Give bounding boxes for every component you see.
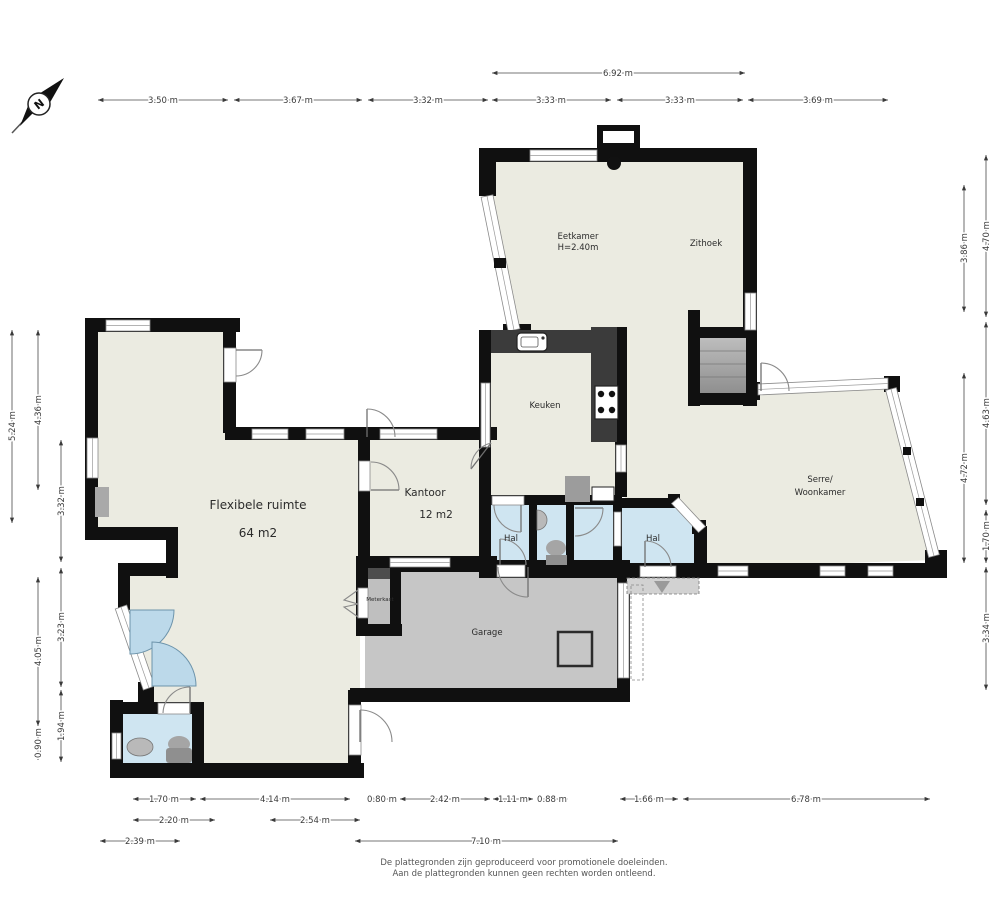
floor-plan: N [0, 0, 1000, 908]
dim-bottom1-7: 6.78 m [791, 795, 821, 805]
dim-bottom3-0: 2.39 m [125, 837, 155, 847]
dim-bottom1-2: 0.80 m [367, 795, 397, 805]
room-label-kantoor: Kantoor [404, 487, 446, 499]
garage-hatch-icon [558, 632, 592, 666]
window-keuken-left [481, 383, 490, 447]
dim-left-col2-1: 4.05 m [34, 636, 44, 666]
stairs-icon [700, 338, 746, 393]
dim-left-col3-1: 3.23 m [57, 612, 67, 642]
door-flex-lower-right [360, 710, 392, 742]
floorplan-page: N [0, 0, 1000, 908]
dim-bottom1-5: 0.88 m [537, 795, 567, 805]
porch-icon [627, 578, 699, 594]
room-label-flexibele: Flexibele ruimte [209, 498, 306, 512]
boiler-icon [592, 487, 614, 501]
room-label-serre-2: Woonkamer [795, 488, 846, 498]
dim-right-inner-0: 3.86 m [960, 233, 970, 263]
floors [98, 160, 934, 766]
window-kantoor-north [380, 429, 437, 439]
driveway-marker [631, 585, 643, 680]
dim-bottom1-0: 1.70 m [149, 795, 179, 805]
compass-icon: N [12, 78, 64, 133]
dim-top-2: 3.32 m [413, 96, 443, 106]
window-keuken-right-pass [616, 445, 626, 472]
radiator-icon [95, 487, 109, 517]
dim-bottom1-4: 1.11 m [498, 795, 528, 805]
dim-left-col1-0: 5.24 m [8, 411, 18, 441]
dim-bottom1-1: 4.14 m [260, 795, 290, 805]
footer-line-1: De plattegronden zijn geproduceerd voor … [380, 858, 667, 868]
room-hal-mid-floor [574, 505, 613, 565]
window-flex-top [106, 320, 150, 331]
dim-top-5: 3.69 m [803, 96, 833, 106]
room-eetkamer-floor [486, 160, 745, 340]
dim-left-col2-2: 0.90 m [34, 728, 44, 758]
cupboard-icon [565, 476, 590, 502]
dim-top-overall: 6.92 m [603, 69, 633, 79]
room-label-eetkamer: Eetkamer [558, 232, 599, 242]
room-label-kantoor-area: 12 m2 [419, 509, 453, 521]
room-label-flexibele-area: 64 m2 [239, 526, 277, 540]
dim-right-outer-2: 1.70 m [982, 521, 992, 551]
room-kantoor-floor [368, 438, 481, 560]
window-bathroom-left [112, 733, 121, 759]
window-eetkamer-top [530, 150, 597, 161]
footer-disclaimer: De plattegronden zijn geproduceerd voor … [380, 858, 667, 879]
dim-bottom2-1: 2.54 m [300, 816, 330, 826]
window-midwall-1 [252, 429, 288, 439]
garage-door [618, 583, 629, 678]
dim-left-col2-0: 4.36 m [34, 395, 44, 425]
meterkast-meterboard [368, 568, 392, 579]
dim-left-col3-2: 1.94 m [57, 711, 67, 741]
room-label-keuken: Keuken [529, 401, 560, 411]
dim-top-1: 3.67 m [283, 96, 313, 106]
door-flex-side [236, 350, 262, 376]
room-label-serre-1: Serre/ [807, 475, 833, 485]
window-kantoor-south [390, 558, 450, 567]
dim-right-outer-3: 3.34 m [982, 613, 992, 643]
dim-bottom1-6: 1.66 m [634, 795, 664, 805]
dim-top-4: 3.33 m [665, 96, 695, 106]
room-label-hal-left: Hal [504, 534, 518, 544]
dim-top-3: 3.33 m [536, 96, 566, 106]
footer-line-2: Aan de plattegronden kunnen geen rechten… [392, 869, 655, 879]
room-label-hal-right: Hal [646, 534, 660, 544]
window-eetkamer-right [745, 293, 756, 330]
dim-bottom1-3: 2.42 m [430, 795, 460, 805]
room-label-meterkast: Meterkast [366, 597, 394, 603]
room-label-eetkamer-height: H=2.40m [558, 243, 599, 253]
room-label-garage: Garage [471, 628, 502, 638]
dim-bottom2-0: 2.20 m [159, 816, 189, 826]
window-midwall-2 [306, 429, 344, 439]
dim-left-col3-0: 3.32 m [57, 486, 67, 516]
dim-right-inner-1: 4.72 m [960, 453, 970, 483]
dim-right-outer-0: 4.70 m [982, 221, 992, 251]
room-label-zithoek: Zithoek [690, 239, 722, 249]
window-serre-bottom-3 [868, 566, 893, 576]
window-serre-bottom-1 [718, 566, 748, 576]
dim-top-0: 3.50 m [148, 96, 178, 106]
dim-bottom3-1: 7.10 m [471, 837, 501, 847]
dim-right-outer-1: 4.63 m [982, 398, 992, 428]
window-serre-bottom-2 [820, 566, 845, 576]
window-flex-left [87, 438, 98, 478]
